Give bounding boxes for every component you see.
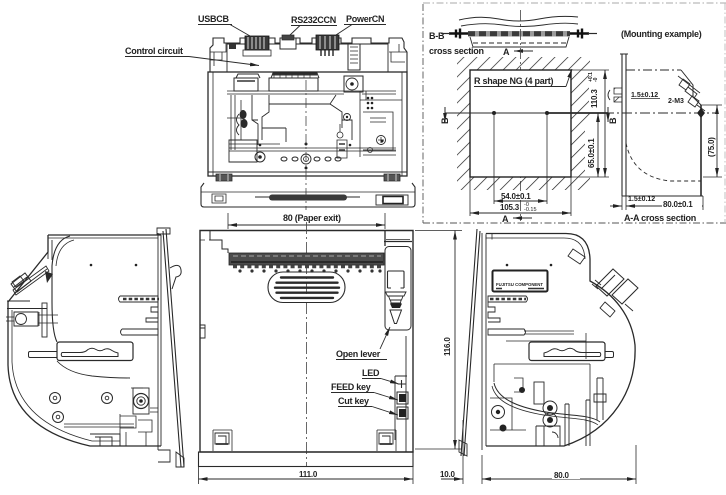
svg-text:1.5±0.12: 1.5±0.12: [628, 196, 655, 203]
svg-text:USBCB: USBCB: [198, 14, 230, 24]
svg-text:1.5±0.12: 1.5±0.12: [631, 92, 658, 99]
svg-text:80 (Paper exit): 80 (Paper exit): [283, 213, 341, 223]
svg-text:2-M3: 2-M3: [668, 98, 684, 105]
svg-text:65.0±0.1: 65.0±0.1: [587, 138, 596, 168]
svg-text:A: A: [503, 47, 510, 57]
svg-text:B: B: [440, 117, 450, 124]
svg-text:111.0: 111.0: [299, 470, 318, 479]
svg-text:FEED key: FEED key: [331, 382, 371, 392]
svg-text:Cut key: Cut key: [338, 396, 369, 406]
svg-text:cross section: cross section: [429, 46, 484, 56]
svg-text:-0: -0: [593, 77, 599, 82]
svg-text:B-B: B-B: [429, 31, 445, 41]
svg-text:Open lever: Open lever: [336, 349, 381, 359]
svg-text:RS232CCN: RS232CCN: [291, 15, 336, 25]
svg-text:A: A: [502, 214, 509, 224]
svg-text:FUJITSU COMPONENT: FUJITSU COMPONENT: [496, 282, 543, 287]
svg-text:Control circuit: Control circuit: [125, 46, 183, 56]
svg-text:A-A cross section: A-A cross section: [624, 213, 696, 223]
svg-text:B: B: [608, 117, 618, 124]
svg-text:116.0: 116.0: [443, 337, 452, 356]
svg-text:80.0±0.1: 80.0±0.1: [663, 200, 693, 209]
svg-text:PowerCN: PowerCN: [346, 14, 384, 24]
svg-text:54.0±0.1: 54.0±0.1: [501, 192, 531, 201]
svg-text:110.3: 110.3: [590, 89, 599, 108]
svg-text:(75.0): (75.0): [707, 137, 716, 157]
svg-text:105.3: 105.3: [500, 203, 520, 212]
svg-text:80.0: 80.0: [554, 471, 570, 480]
svg-text:LED: LED: [362, 368, 380, 378]
svg-text:10.0: 10.0: [440, 470, 456, 479]
svg-text:(Mounting example): (Mounting example): [621, 29, 702, 39]
svg-text:R shape NG (4 part): R shape NG (4 part): [474, 76, 554, 86]
svg-text:-0.15: -0.15: [524, 207, 537, 213]
